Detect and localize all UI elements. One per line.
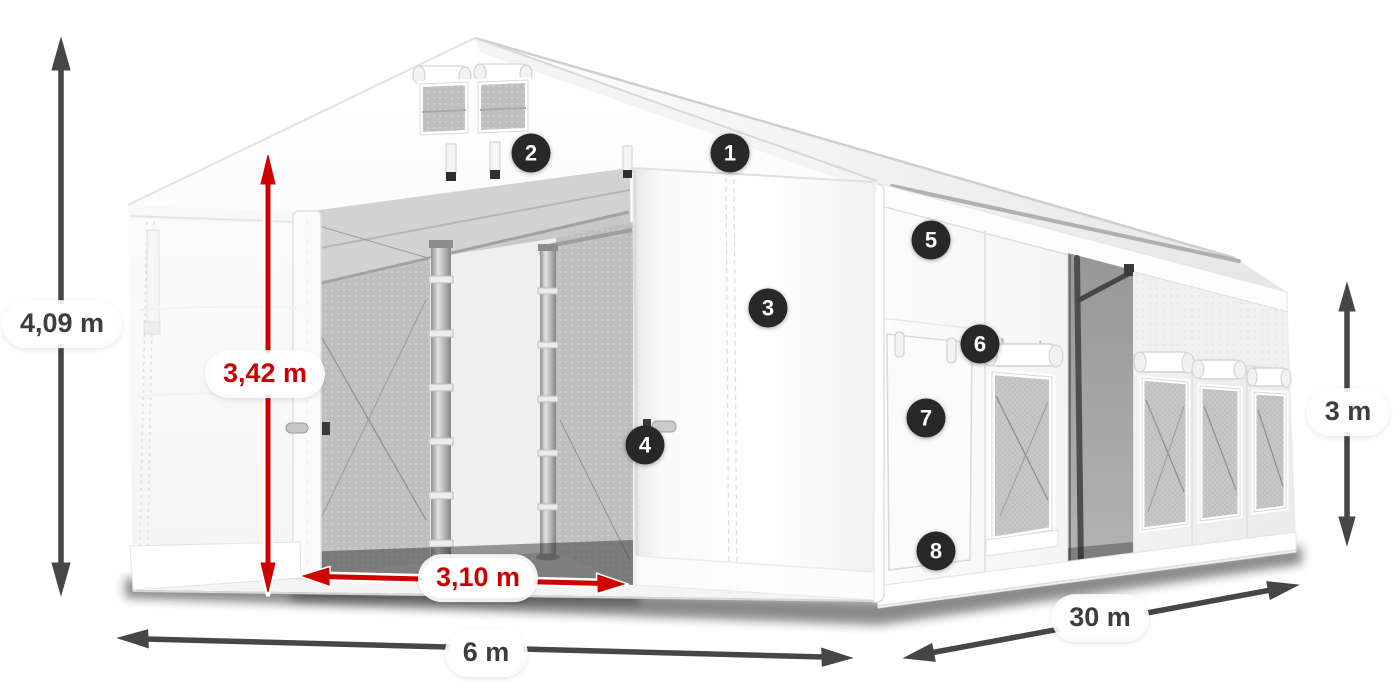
dimension-label-side-length: 30 m: [1055, 598, 1145, 638]
dimension-label-inner-height: 3,42 m: [209, 354, 321, 394]
door-pole: [1077, 258, 1081, 570]
callout-5: 5: [912, 221, 951, 260]
callout-8: 8: [917, 532, 956, 571]
callout-3: 3: [749, 289, 788, 328]
callout-4: 4: [626, 426, 665, 465]
front-doorway-interior: [298, 168, 633, 585]
gable-window-right: [474, 64, 532, 133]
dimension-label-side-height: 3 m: [1311, 392, 1386, 432]
callout-7: 7: [907, 399, 946, 438]
callout-1: 1: [711, 134, 750, 173]
tent-dimension-diagram: 4,09 m 3,42 m 3,10 m 6 m 30 m 3 m 1 2 3 …: [0, 0, 1400, 700]
dimension-label-front-width: 6 m: [449, 633, 524, 673]
interior-mesh-right: [556, 222, 633, 585]
dimension-label-total-height: 4,09 m: [6, 304, 118, 344]
callout-6: 6: [961, 325, 1000, 364]
callout-2: 2: [512, 134, 551, 173]
front-door-closed: [633, 168, 874, 600]
tent-illustration: [0, 0, 1400, 700]
gable-window-left: [413, 66, 471, 135]
dimension-label-door-width: 3,10 m: [422, 558, 534, 598]
side-opening: [1068, 253, 1134, 577]
flap-strap: [947, 338, 956, 363]
left-door-handle: [286, 423, 308, 433]
flap-strap: [895, 332, 904, 357]
